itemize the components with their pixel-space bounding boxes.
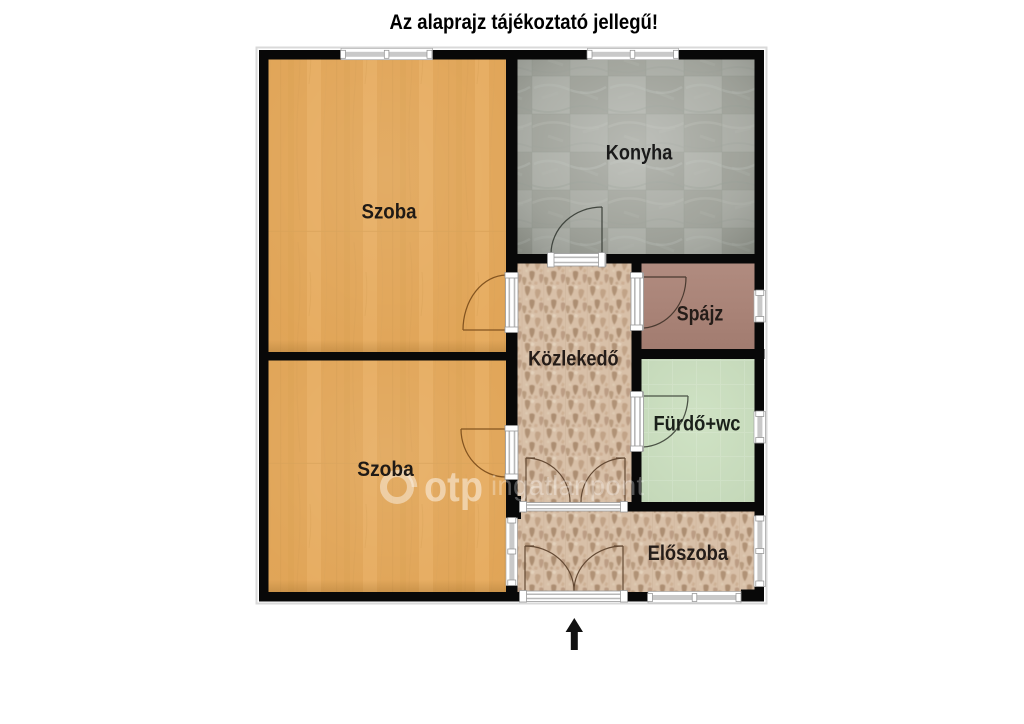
- svg-text:Fürdő+wc: Fürdő+wc: [654, 412, 741, 436]
- svg-text:Az alaprajz tájékoztató jelleg: Az alaprajz tájékoztató jellegű!: [390, 10, 659, 34]
- svg-text:ingatlanpont: ingatlanpont: [491, 470, 645, 501]
- svg-text:Konyha: Konyha: [606, 141, 673, 165]
- svg-text:Spájz: Spájz: [677, 302, 724, 326]
- svg-text:Előszoba: Előszoba: [648, 541, 729, 565]
- svg-text:Szoba: Szoba: [357, 457, 414, 481]
- svg-text:Szoba: Szoba: [362, 200, 418, 224]
- svg-text:otp: otp: [424, 463, 483, 511]
- svg-text:Közlekedő: Közlekedő: [528, 347, 619, 371]
